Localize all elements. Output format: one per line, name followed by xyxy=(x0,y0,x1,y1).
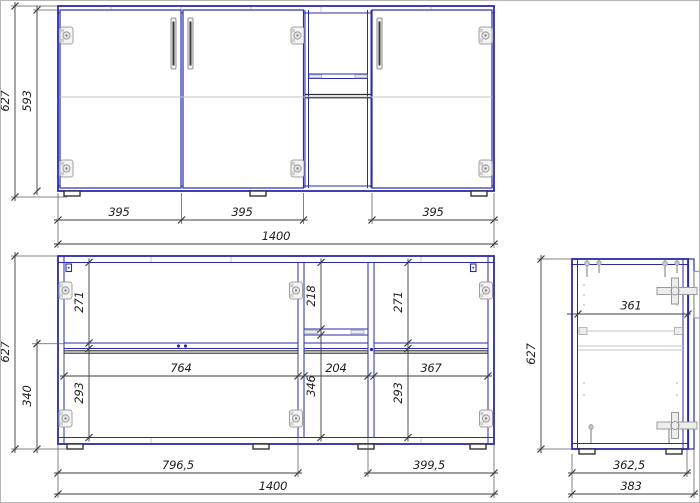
hinge-icon xyxy=(479,160,492,177)
drawer-slide-icon xyxy=(579,328,587,335)
cabinet-technical-drawing: 627 593 395 395 395 1400 xyxy=(0,0,700,503)
foot-icon xyxy=(67,444,83,449)
hinge-icon xyxy=(59,410,72,427)
camlock-icon xyxy=(471,264,477,272)
drawer-slide-icon xyxy=(675,328,683,335)
dim-internal-mid-upper: 218 xyxy=(304,285,318,306)
hinge-icon xyxy=(290,282,303,299)
door-handle-icon xyxy=(188,18,193,69)
foot-icon xyxy=(579,449,595,454)
dim-internal-left-lower: 293 xyxy=(72,382,86,403)
foot-icon xyxy=(471,191,487,196)
dim-front-total-width: 1400 xyxy=(262,229,290,243)
dim-internal-left-inner-width: 764 xyxy=(170,361,191,375)
dim-internal-mid-lower: 346 xyxy=(304,375,318,396)
dim-internal-mid-inner-width: 204 xyxy=(325,361,346,375)
dim-internal-left-upper: 271 xyxy=(72,291,86,312)
front-doors xyxy=(60,10,492,188)
hinge-icon xyxy=(479,27,492,44)
dim-internal-right-lower: 293 xyxy=(391,382,405,403)
foot-icon xyxy=(64,191,80,196)
internal-carcass xyxy=(58,256,494,444)
dim-internal-total-height: 627 xyxy=(1,340,12,362)
dowel-mark xyxy=(370,348,373,351)
hinge-icon xyxy=(480,410,493,427)
hinge-icon xyxy=(480,282,493,299)
dim-internal-right-inner-width: 367 xyxy=(420,361,442,375)
foot-icon xyxy=(666,449,682,454)
front-view: 627 593 395 395 395 1400 xyxy=(1,2,498,248)
technical-drawing-canvas: 627 593 395 395 395 1400 xyxy=(1,1,700,503)
hinge-icon xyxy=(291,27,304,44)
door-handle-icon xyxy=(171,18,176,69)
hinge-icon xyxy=(59,282,72,299)
dim-front-door2-width: 395 xyxy=(231,205,252,219)
dim-side-inner-depth: 361 xyxy=(620,299,641,313)
dim-front-door-height: 593 xyxy=(20,90,34,111)
foot-icon xyxy=(250,191,266,196)
dim-side-total-depth: 383 xyxy=(620,479,641,493)
door-middle xyxy=(183,10,304,188)
dim-front-total-height: 627 xyxy=(1,89,12,111)
foot-icon xyxy=(470,444,486,449)
dim-internal-right-upper: 271 xyxy=(391,291,405,312)
drawer-slide-icon xyxy=(310,75,322,78)
dim-internal-left-section-width: 796,5 xyxy=(162,458,194,472)
drawer-slide-icon xyxy=(355,75,367,78)
internal-view: 627 340 271 293 218 346 271 xyxy=(1,252,498,498)
door-right xyxy=(372,10,492,188)
camlock-icon xyxy=(66,264,72,272)
drawer-slide-icon xyxy=(305,330,318,334)
foot-icon xyxy=(358,444,374,449)
drawer-slide-icon xyxy=(351,330,364,334)
dowel-mark xyxy=(184,344,187,347)
dim-internal-right-section-width: 399,5 xyxy=(413,458,445,472)
dim-front-door1-width: 395 xyxy=(108,205,129,219)
hinge-icon xyxy=(291,160,304,177)
hinge-icon xyxy=(290,410,303,427)
hinge-icon xyxy=(60,160,73,177)
side-view: 627 361 362,5 383 xyxy=(524,255,700,498)
dowel-mark xyxy=(177,344,180,347)
dim-side-total-height: 627 xyxy=(524,342,538,364)
dim-front-door3-width: 395 xyxy=(422,205,443,219)
foot-icon xyxy=(253,444,269,449)
dim-internal-total-width: 1400 xyxy=(259,479,287,493)
door-left xyxy=(60,10,181,188)
dim-internal-base-height: 340 xyxy=(20,385,34,406)
dim-side-body-depth: 362,5 xyxy=(613,458,645,472)
door-handle-icon xyxy=(377,18,382,69)
hinge-icon xyxy=(60,27,73,44)
